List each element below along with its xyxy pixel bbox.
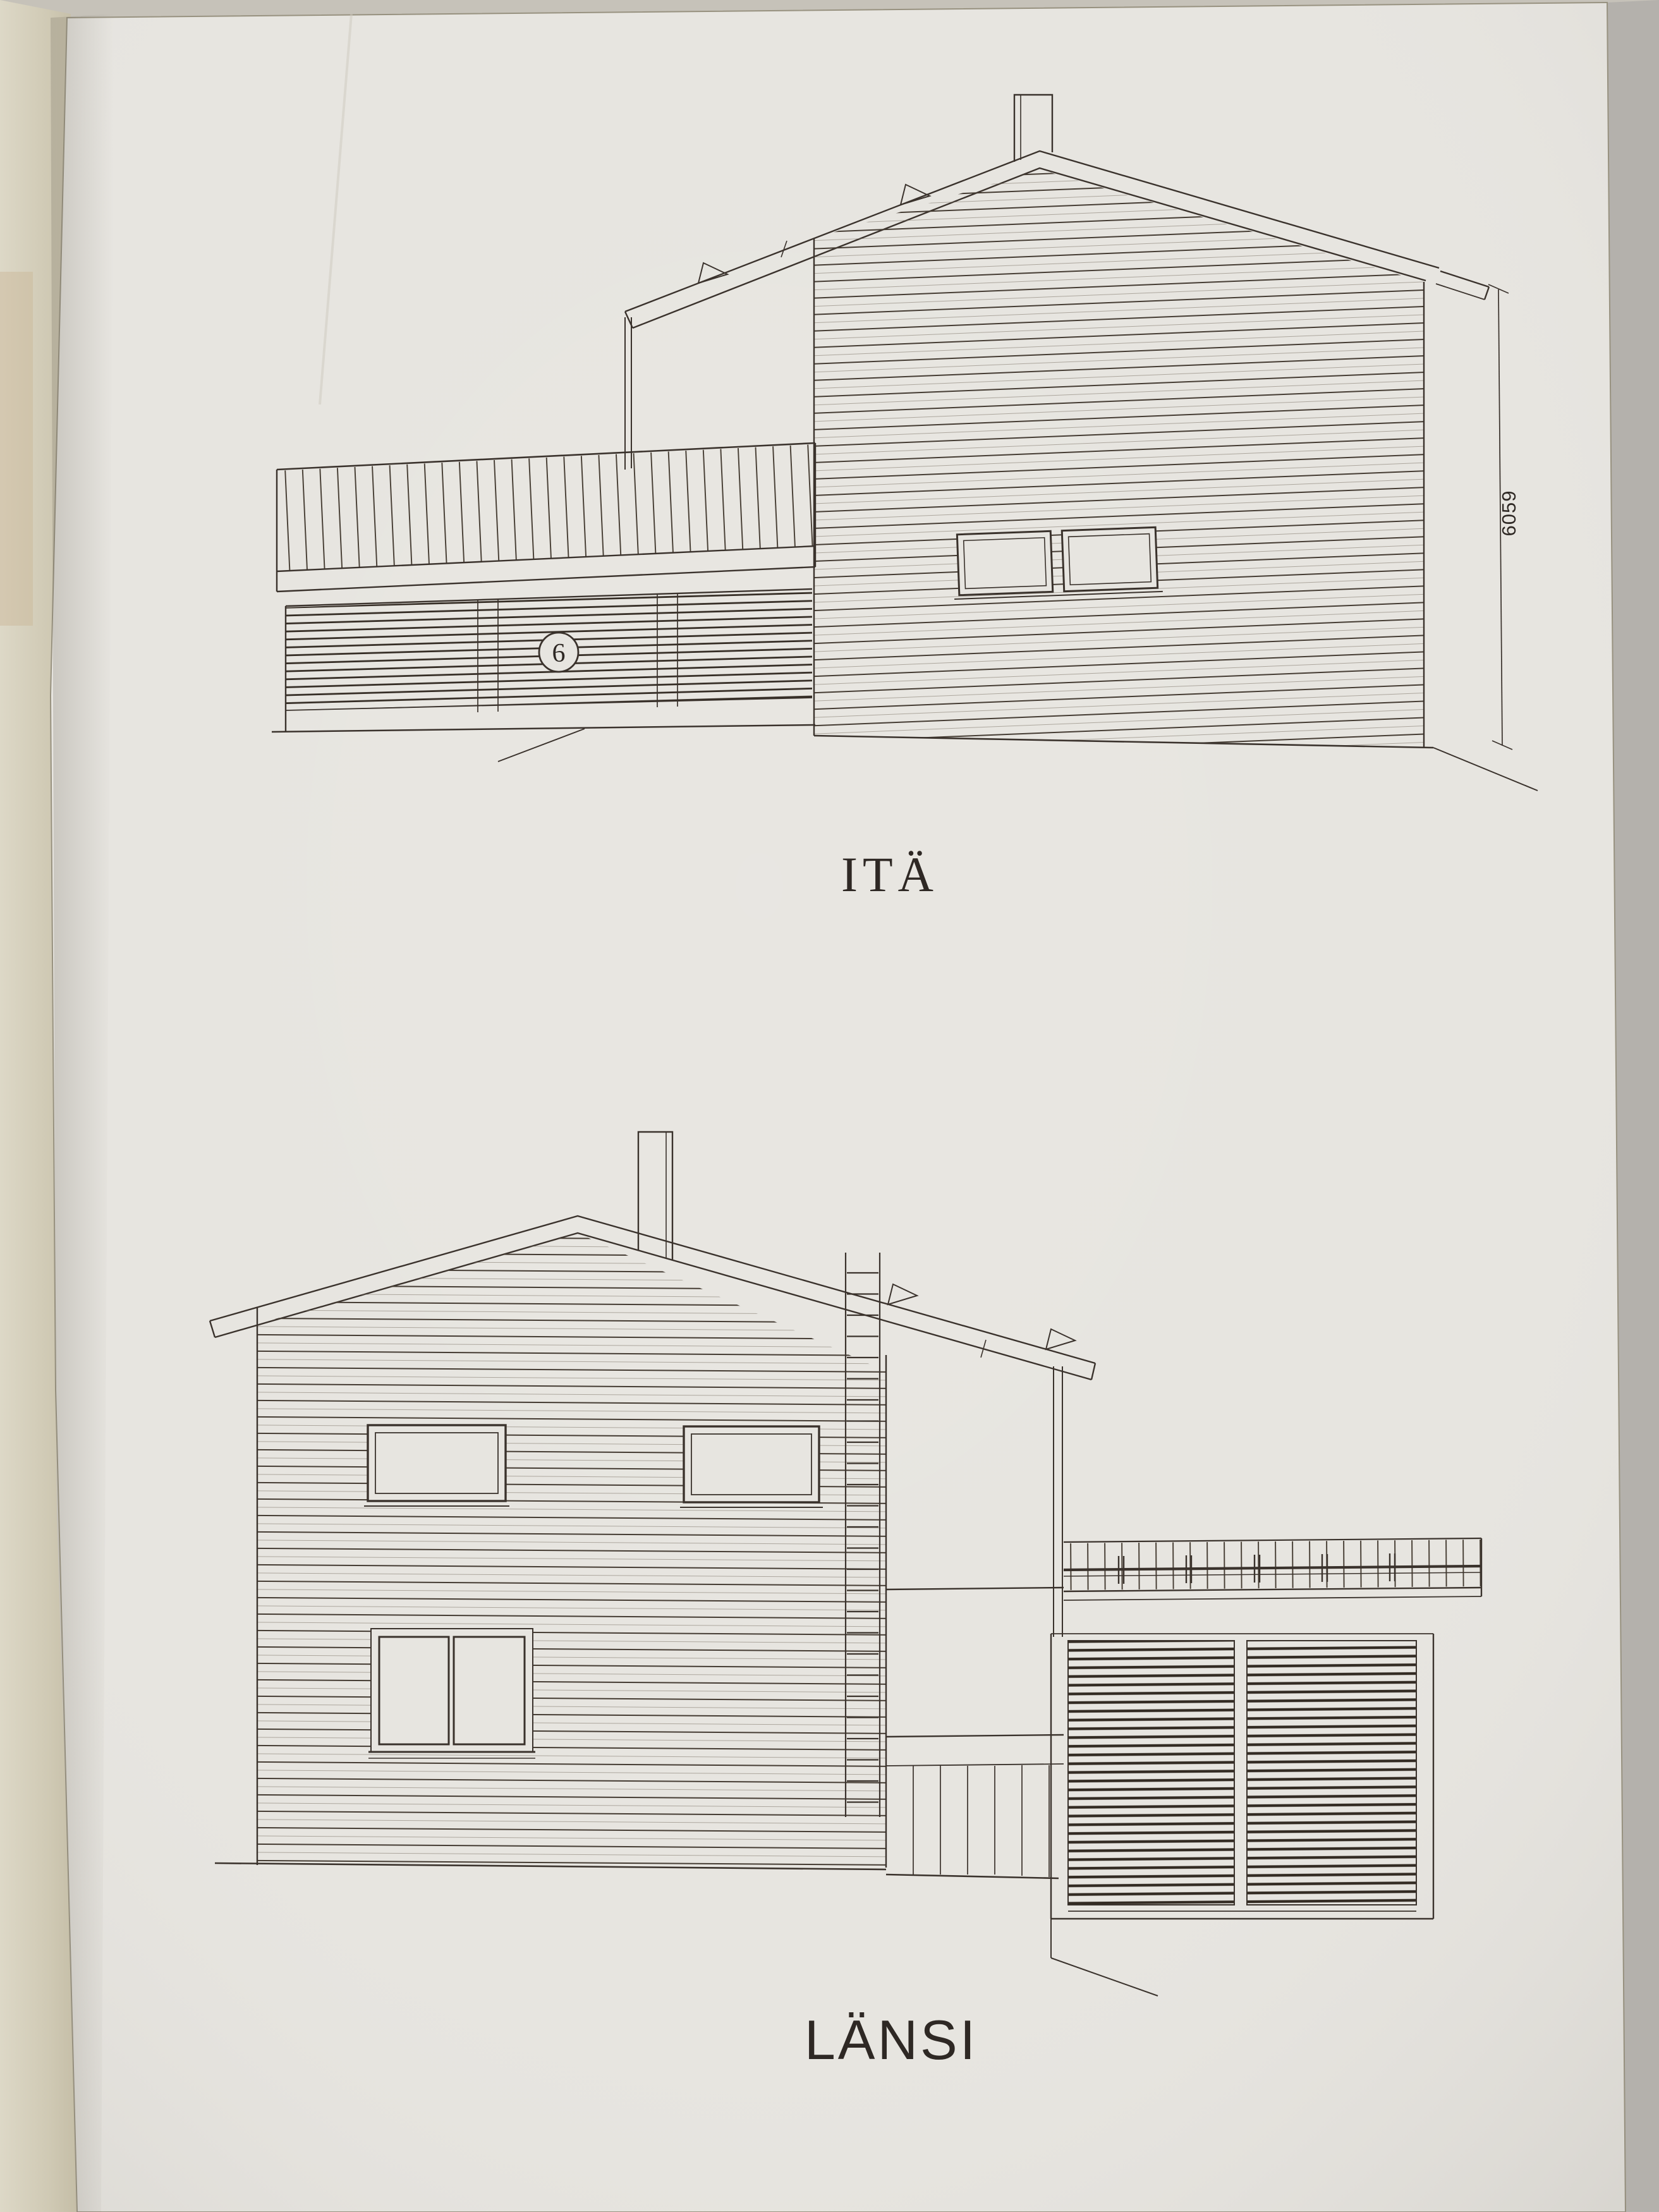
window [684,1426,819,1502]
window-frame [371,1629,533,1752]
detail-marker: 6 [539,633,578,672]
table-surface-warm-patch [0,272,33,626]
elevation-sheet-svg: 6 6059 ITÄ [0,0,1659,2212]
main-wall-east [814,169,1424,748]
window [368,1425,506,1501]
siding-east [814,169,1424,748]
detail-marker-number: 6 [552,639,566,668]
lower-double-window-west [368,1629,535,1758]
west-elevation-label: LÄNSI [805,2008,978,2071]
roof-ladder [846,1253,880,1817]
east-elevation-label: ITÄ [841,847,939,902]
height-dimension-text: 6059 [1498,490,1520,537]
photo-of-drawing-sheet: 6 6059 ITÄ [0,0,1659,2212]
ladder-rungs [847,1259,878,1814]
terrace-railing-slats [1064,1540,1481,1590]
garage-door-louvered [1068,1641,1234,1905]
garage-door-louvered [1247,1641,1416,1905]
